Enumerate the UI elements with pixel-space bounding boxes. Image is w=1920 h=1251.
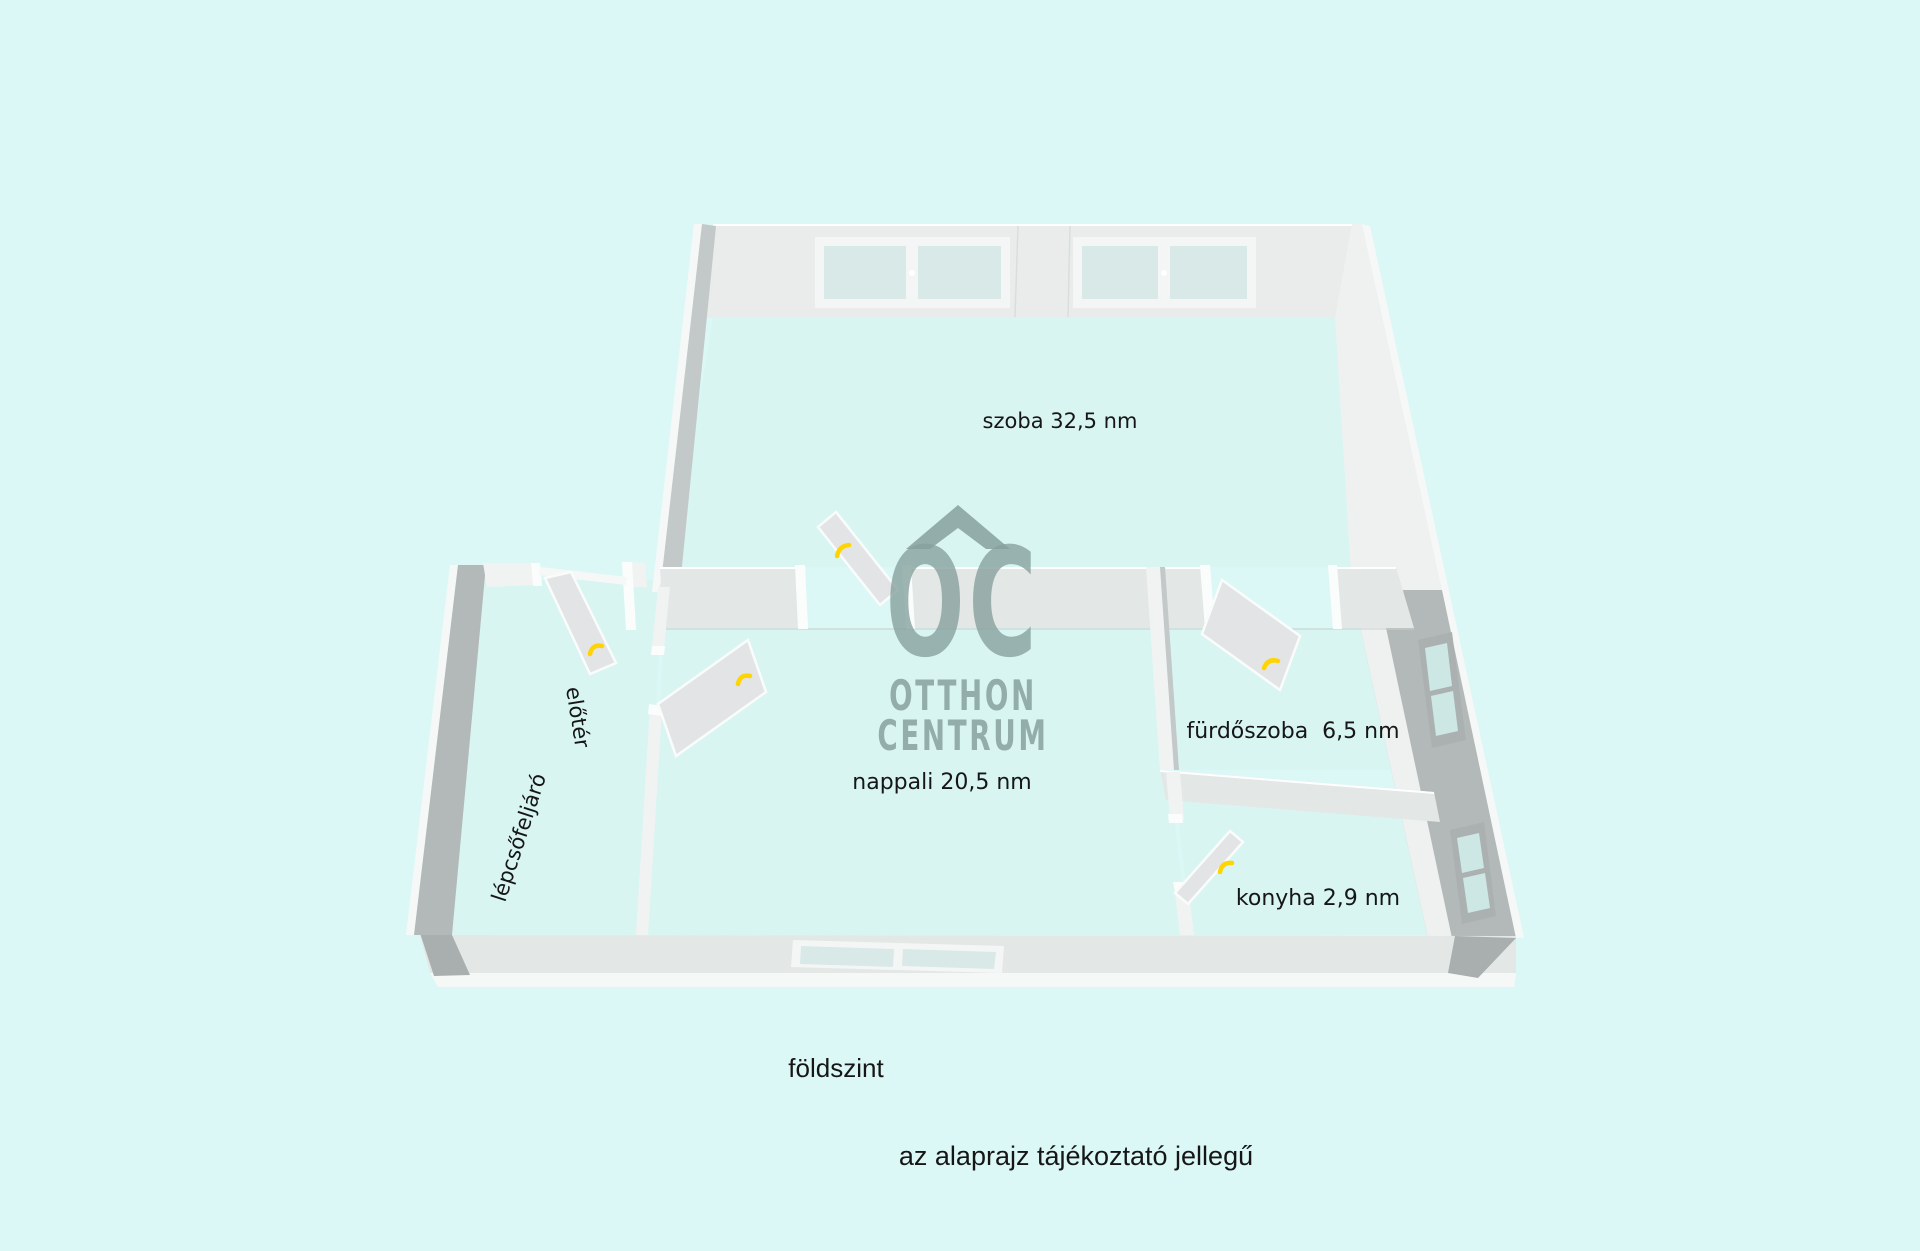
floorplan-svg: OC OTTHON CENTRUM szoba 32,5 nm nappali … xyxy=(0,0,1920,1251)
caption-floor-level: földszint xyxy=(788,1053,884,1083)
floorplan-canvas: OC OTTHON CENTRUM szoba 32,5 nm nappali … xyxy=(0,0,1920,1251)
window-north-2-handle-dot xyxy=(1161,270,1167,276)
label-nappali: nappali 20,5 nm xyxy=(852,770,1031,795)
window-south-pane-right xyxy=(902,949,996,969)
window-south-pane-left xyxy=(800,946,894,967)
watermark-otthon-centrum: OC OTTHON CENTRUM xyxy=(877,505,1048,761)
label-konyha: konyha 2,9 nm xyxy=(1236,886,1400,911)
window-north-2-pane-left xyxy=(1082,246,1158,299)
watermark-line2: CENTRUM xyxy=(877,712,1048,760)
doorframe-kitchen-top-post xyxy=(1168,814,1183,823)
window-north-1-pane-left xyxy=(824,246,906,299)
floor-eloter-lepcso xyxy=(452,580,662,935)
label-furdoszoba: fürdőszoba 6,5 nm xyxy=(1186,719,1399,744)
label-szoba: szoba 32,5 nm xyxy=(983,409,1138,433)
wall-interior-main-left xyxy=(660,567,803,628)
doorframe-nappali-top-post xyxy=(651,646,665,655)
caption-disclaimer: az alaprajz tájékoztató jellegű xyxy=(899,1141,1253,1171)
wall-annex-north-left xyxy=(483,563,538,587)
window-north-2-pane-right xyxy=(1170,246,1247,299)
watermark-monogram: OC xyxy=(886,517,1041,691)
window-north-1-pane-right xyxy=(918,246,1001,299)
wall-east-upper xyxy=(1335,224,1442,590)
wall-south-outer xyxy=(430,973,1516,987)
captions: földszint az alaprajz tájékoztató jelleg… xyxy=(788,1053,1253,1171)
window-north-1-handle-dot xyxy=(909,270,915,276)
